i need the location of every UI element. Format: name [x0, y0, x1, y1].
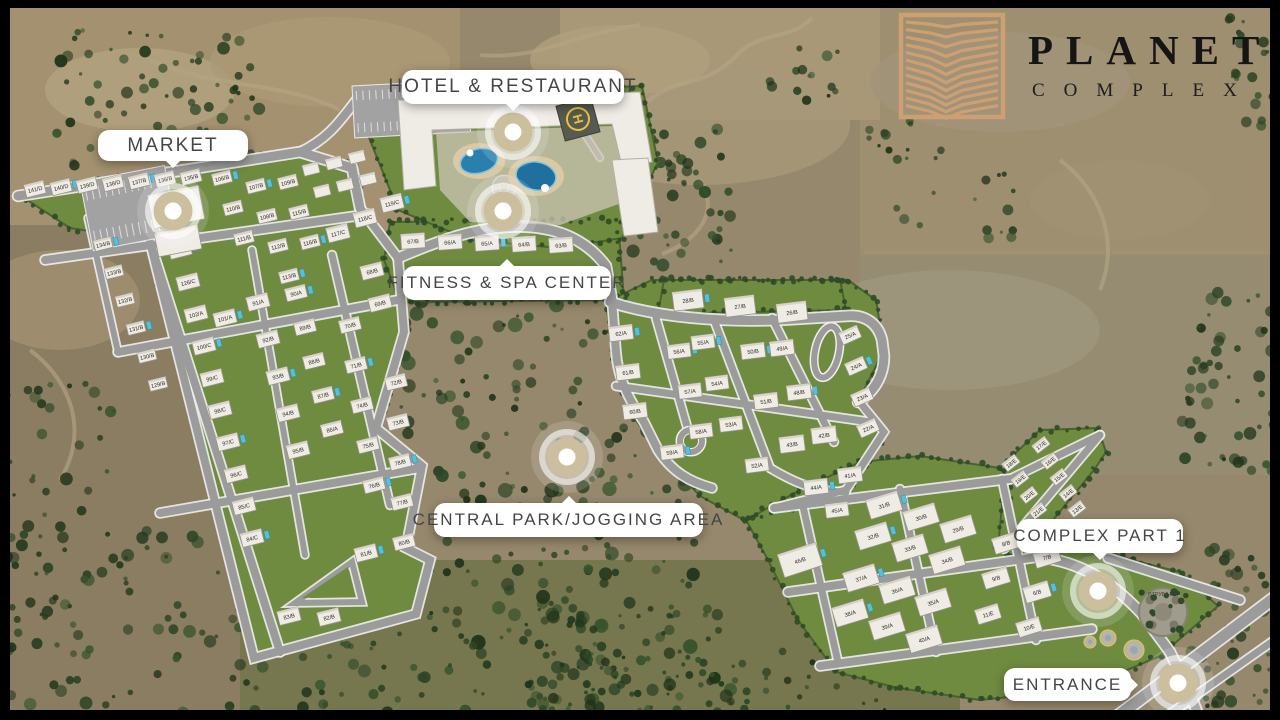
masterplan-page: HВТРУБІНКА 141/D140/D139/D138/D137/B136/…	[0, 0, 1280, 720]
svg-text:ВТРУБІНКА: ВТРУБІНКА	[1148, 592, 1178, 598]
callout-entrance[interactable]: ENTRANCE	[1004, 668, 1131, 701]
callout-fitness-spa-label: FITNESS & SPA CENTER	[388, 273, 627, 293]
svg-text:64/B: 64/B	[518, 242, 530, 249]
callout-market[interactable]: MARKET	[98, 130, 248, 161]
callout-pointer	[498, 250, 516, 268]
house-plot[interactable]: 60/B	[622, 402, 648, 420]
callout-central-park[interactable]: CENTRAL PARK/JOGGING AREA	[434, 503, 703, 537]
house-plot[interactable]: 54/A	[705, 375, 730, 392]
callout-pointer	[164, 159, 182, 177]
brand-subtitle: COMPLEX	[1028, 80, 1272, 102]
house-plot[interactable]: 26/B	[776, 301, 808, 324]
house-plot[interactable]: 57/A	[678, 383, 703, 400]
house-plot[interactable]: 53/A	[719, 416, 744, 433]
house-plot[interactable]: 51/B	[753, 392, 779, 410]
callout-pointer	[504, 102, 522, 120]
svg-text:67/B: 67/B	[407, 239, 419, 246]
house-plot[interactable]: 41/A	[837, 466, 863, 484]
brand-title: PLANET	[1028, 30, 1272, 71]
svg-text:63/B: 63/B	[555, 243, 567, 250]
house-plot[interactable]: 45/A	[825, 502, 850, 519]
callout-pointer	[560, 487, 578, 505]
logo-mark-icon	[898, 12, 1006, 120]
house-plot[interactable]: 49/A	[769, 339, 795, 357]
poi-marker-fitness-spa[interactable]	[467, 175, 539, 247]
house-plot[interactable]: 52/A	[745, 457, 770, 474]
callout-pointer	[1091, 551, 1109, 569]
poi-marker-entrance[interactable]	[1142, 647, 1214, 719]
house-plot[interactable]: 61/B	[615, 363, 641, 381]
callout-complex-part-1-label: COMPLEX PART 1	[1013, 526, 1187, 546]
callout-fitness-spa[interactable]: FITNESS & SPA CENTER	[403, 266, 611, 300]
house-plot[interactable]: 67/B	[401, 233, 426, 250]
callout-hotel-restaurant-label: HOTEL & RESTAURANT	[388, 76, 637, 98]
svg-text:66/A: 66/A	[444, 240, 456, 247]
poi-marker-central-park[interactable]	[531, 421, 603, 493]
house-plot[interactable]: 27/B	[724, 295, 756, 318]
house-plot[interactable]: 42/B	[811, 426, 838, 445]
house-plot[interactable]: 66/A	[438, 234, 463, 251]
callout-hotel-restaurant[interactable]: HOTEL & RESTAURANT	[402, 70, 624, 104]
house-plot[interactable]: 43/B	[779, 435, 806, 454]
house-plot[interactable]: 63/B	[549, 237, 574, 254]
poi-marker-market[interactable]	[137, 175, 209, 247]
callout-pointer	[1129, 676, 1147, 694]
callout-entrance-label: ENTRANCE	[1013, 675, 1123, 695]
house-plot[interactable]: 58/A	[689, 423, 714, 440]
brand-logo: PLANET COMPLEX	[898, 12, 1272, 120]
callout-complex-part-1[interactable]: COMPLEX PART 1	[1017, 519, 1183, 553]
callout-central-park-label: CENTRAL PARK/JOGGING AREA	[413, 510, 725, 530]
callout-market-label: MARKET	[127, 135, 218, 157]
